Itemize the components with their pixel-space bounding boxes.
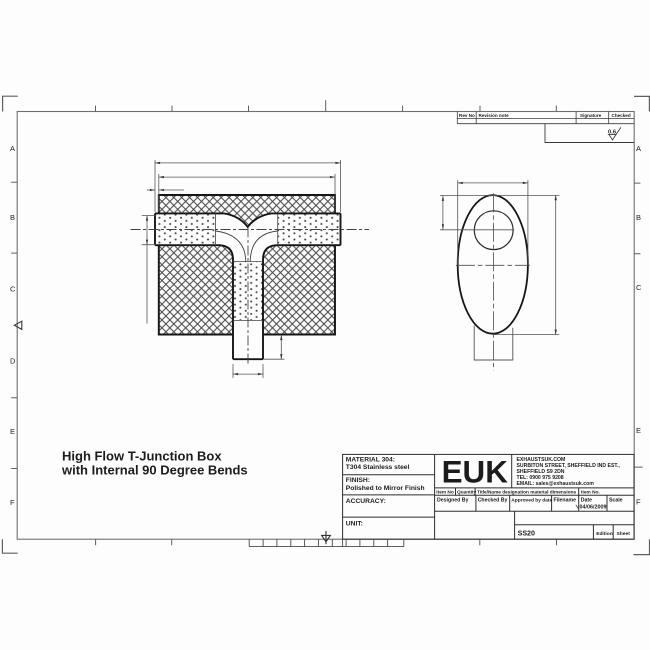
svg-text:UNIT:: UNIT: [346,520,363,527]
svg-text:ACCURACY:: ACCURACY: [346,498,386,505]
svg-text:EUK: EUK [442,453,508,489]
svg-text:D: D [10,357,16,366]
svg-text:A: A [636,144,641,153]
svg-text:F: F [636,498,641,507]
svg-text:E: E [10,427,15,436]
svg-text:A: A [10,144,15,153]
svg-text:with Internal 90 Degree Bends: with Internal 90 Degree Bends [61,462,248,477]
svg-text:Edition: Edition [596,531,613,537]
svg-text:04/06/2009: 04/06/2009 [580,505,607,511]
svg-text:Checked By: Checked By [478,497,508,503]
svg-text:B: B [10,213,15,222]
svg-text:FINISH:: FINISH: [346,477,370,484]
svg-text:Revision note: Revision note [479,113,510,118]
svg-text:Designed By: Designed By [437,497,469,503]
svg-text:Signature: Signature [580,113,602,118]
svg-text:F: F [10,498,15,507]
svg-text:Item No: Item No [436,489,454,495]
svg-text:Filename: Filename [554,497,577,503]
svg-text:C: C [10,285,16,294]
svg-text:Scale: Scale [609,497,623,503]
svg-text:E: E [636,426,641,435]
svg-text:Rev No: Rev No [459,113,475,118]
svg-text:Checked: Checked [612,113,631,118]
svg-text:Sheet: Sheet [617,531,631,537]
svg-text:MATERIAL 304:: MATERIAL 304: [346,456,395,463]
svg-text:SS20: SS20 [518,530,535,538]
svg-text:High Flow T-Junction Box: High Flow T-Junction Box [62,449,222,464]
svg-text:Polished to Mirror Finish: Polished to Mirror Finish [346,485,425,492]
svg-text:B: B [636,213,641,222]
svg-text:Item No.: Item No. [581,489,600,495]
svg-text:T304 Stainless steel: T304 Stainless steel [346,464,410,471]
svg-text:EMAIL: sales@exhaustsuk.com: EMAIL: sales@exhaustsuk.com [517,481,595,487]
svg-text:Quantity: Quantity [457,489,477,495]
svg-text:Date: Date [581,497,592,503]
svg-text:Title/Name designation materia: Title/Name designation material dimensio… [477,489,577,495]
svg-text:C: C [636,283,642,292]
svg-text:Approved by date: Approved by date [511,497,552,503]
